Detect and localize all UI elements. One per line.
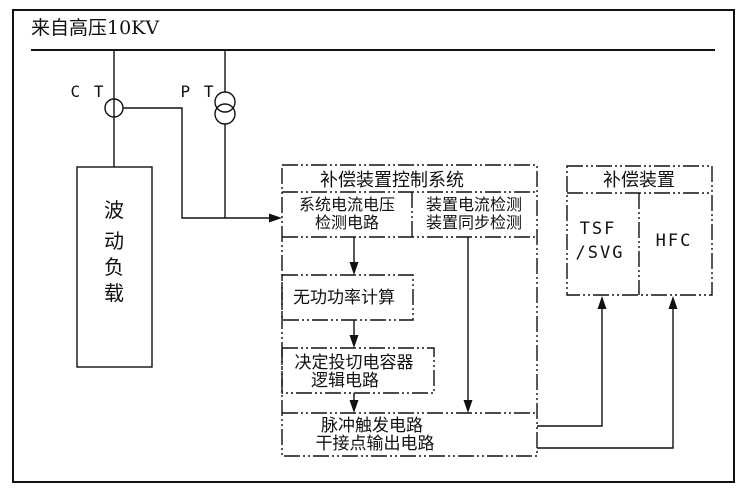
hfc-label: HFC bbox=[656, 231, 693, 251]
route-pulse-to-tsf bbox=[537, 308, 602, 426]
pulse-output-line2: 干接点输出电路 bbox=[316, 434, 435, 454]
ct-signal-line bbox=[123, 108, 270, 218]
comp-device-title: 补偿装置 bbox=[603, 170, 675, 191]
switch-logic-line1: 决定投切电容器 bbox=[295, 353, 414, 373]
compensation-system-diagram: 来自高压10KV C T P T 波 动 负 载 补偿装置控制系统 系统电流电压… bbox=[0, 0, 744, 494]
diagram-canvas: 来自高压10KV C T P T 波 动 负 载 补偿装置控制系统 系统电流电压… bbox=[0, 0, 744, 494]
system-detect-line1: 系统电流电压 bbox=[299, 195, 395, 214]
pulse-output-line1: 脉冲触发电路 bbox=[321, 416, 423, 436]
arrow-into-control-box bbox=[269, 214, 282, 223]
pt-label: P T bbox=[181, 82, 216, 101]
reactive-calc-label: 无功功率计算 bbox=[293, 288, 395, 308]
arrow-reactive-to-logic bbox=[350, 335, 359, 348]
control-system-title: 补偿装置控制系统 bbox=[320, 170, 464, 191]
load-label-char-3: 负 bbox=[104, 255, 124, 279]
switch-logic-line2: 逻辑电路 bbox=[311, 371, 379, 391]
arrow-device-detect-to-pulse bbox=[464, 400, 473, 413]
load-label-char-4: 载 bbox=[104, 281, 124, 305]
ct-label: C T bbox=[71, 82, 106, 101]
arrow-pulse-to-tsf bbox=[598, 296, 607, 309]
device-detect-line2: 装置同步检测 bbox=[426, 213, 522, 232]
tsf-label-line2: /SVG bbox=[576, 243, 625, 263]
pt-transformer-icon-top bbox=[215, 92, 235, 112]
tsf-label-line1: TSF bbox=[580, 219, 617, 239]
load-label-char-2: 动 bbox=[104, 229, 124, 253]
arrow-pulse-to-hfc bbox=[669, 296, 678, 309]
arrow-logic-to-pulse bbox=[350, 400, 359, 413]
device-detect-line1: 装置电流检测 bbox=[426, 195, 522, 214]
load-label-char-1: 波 bbox=[104, 198, 124, 222]
arrow-detect-to-reactive bbox=[350, 262, 359, 275]
pt-transformer-icon-bottom bbox=[215, 104, 235, 124]
system-detect-line2: 检测电路 bbox=[315, 213, 379, 232]
bus-label: 来自高压10KV bbox=[31, 17, 159, 39]
route-pulse-to-hfc bbox=[537, 308, 673, 448]
